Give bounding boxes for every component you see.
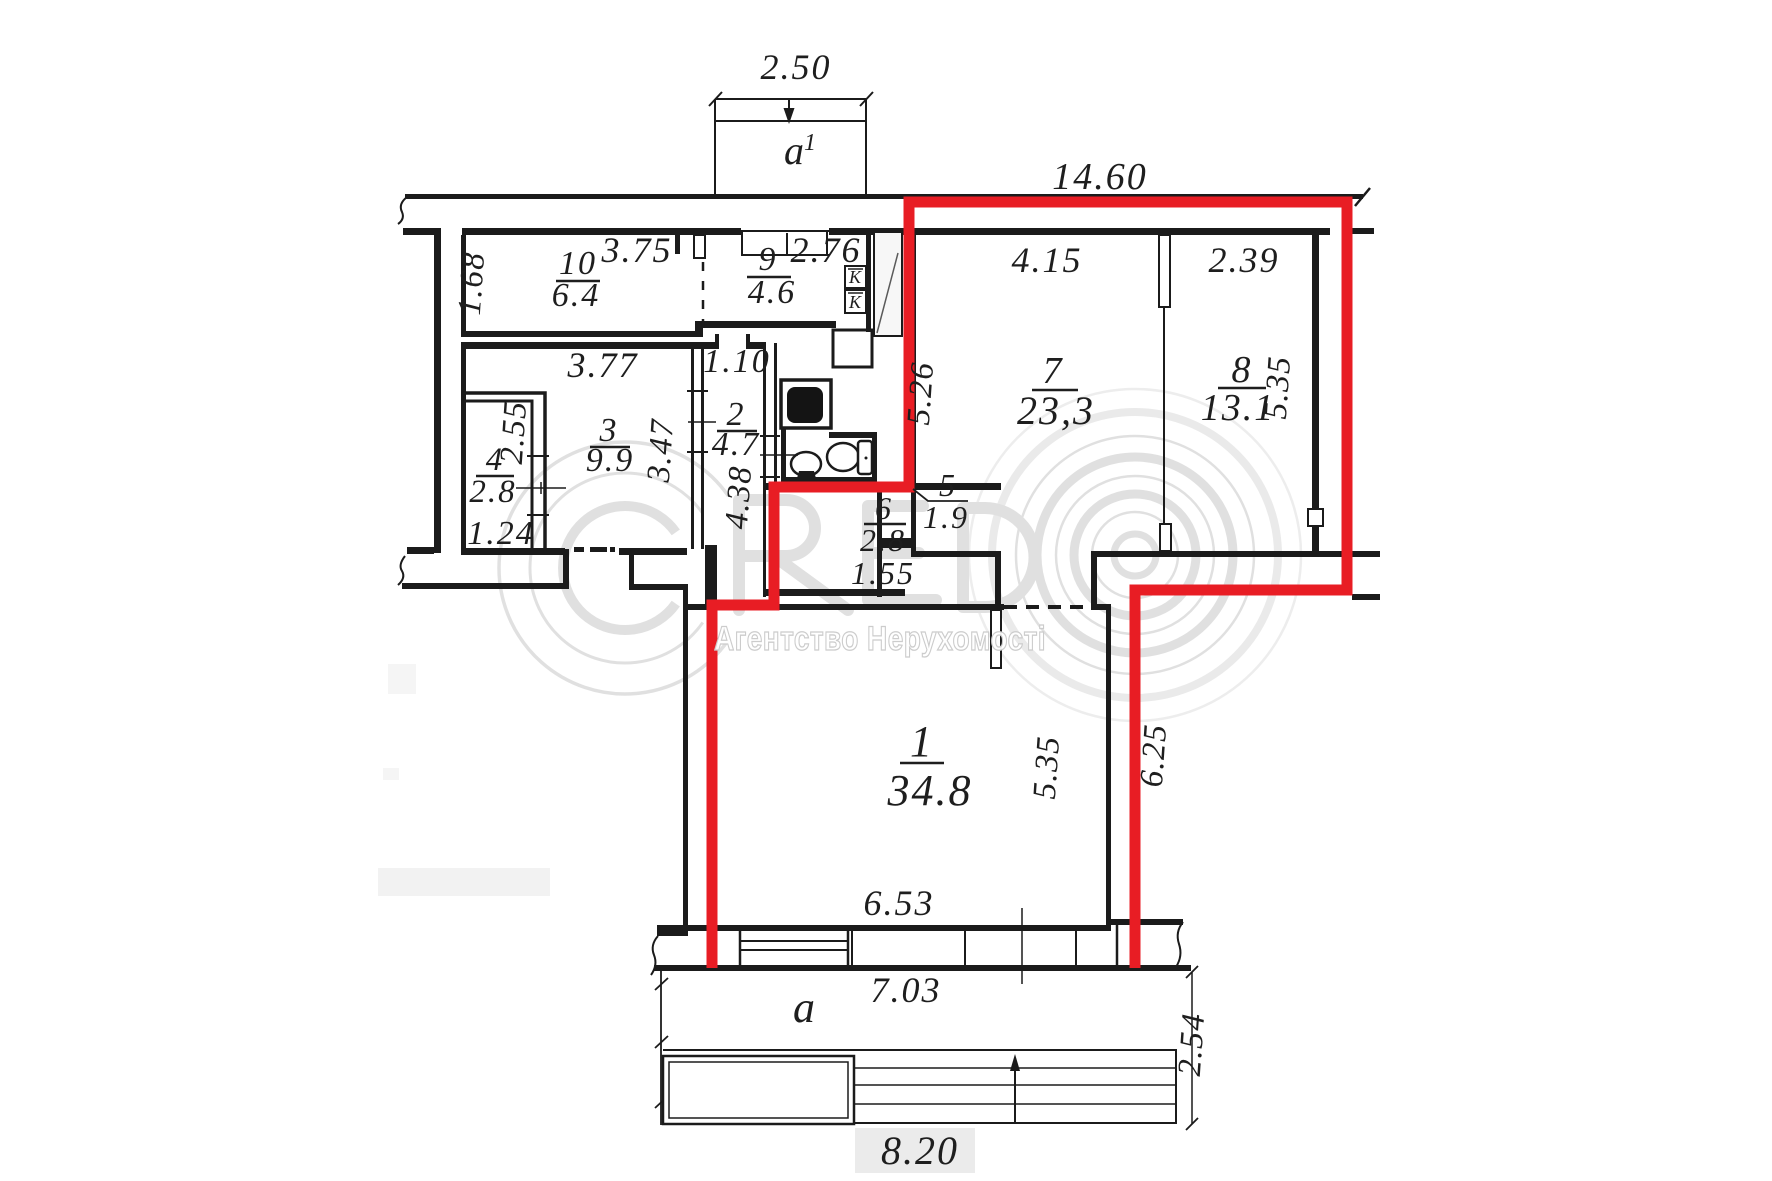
svg-text:9.9: 9.9 xyxy=(586,442,635,479)
svg-text:2.8: 2.8 xyxy=(469,474,516,510)
svg-text:6.53: 6.53 xyxy=(864,883,935,923)
svg-text:6.4: 6.4 xyxy=(552,277,601,314)
svg-text:1.24: 1.24 xyxy=(467,515,535,552)
svg-text:4.38: 4.38 xyxy=(719,464,759,530)
svg-text:1: 1 xyxy=(910,717,934,766)
svg-text:1.10: 1.10 xyxy=(703,343,771,380)
svg-text:7.03: 7.03 xyxy=(871,970,942,1010)
svg-text:4.15: 4.15 xyxy=(1012,240,1083,280)
svg-text:4.7: 4.7 xyxy=(712,426,761,463)
svg-text:9: 9 xyxy=(759,241,778,278)
svg-text:8.20: 8.20 xyxy=(881,1128,959,1173)
svg-text:3.77: 3.77 xyxy=(567,345,639,385)
svg-text:а: а xyxy=(793,983,815,1032)
svg-text:1.55: 1.55 xyxy=(851,555,915,591)
svg-text:2.76: 2.76 xyxy=(791,230,862,270)
svg-text:34.8: 34.8 xyxy=(887,766,973,815)
svg-text:2.50: 2.50 xyxy=(761,47,832,87)
svg-text:К: К xyxy=(848,267,862,287)
svg-text:8: 8 xyxy=(1232,349,1253,391)
svg-text:Агентство Нерухомості: Агентство Нерухомості xyxy=(714,620,1046,658)
svg-text:2.39: 2.39 xyxy=(1209,240,1280,280)
svg-text:4.6: 4.6 xyxy=(748,274,797,311)
svg-text:3.47: 3.47 xyxy=(641,417,681,484)
svg-text:4: 4 xyxy=(486,442,505,478)
svg-text:14.60: 14.60 xyxy=(1052,156,1148,198)
svg-text:6.25: 6.25 xyxy=(1134,722,1174,788)
svg-text:2.54: 2.54 xyxy=(1172,1011,1212,1077)
svg-text:7: 7 xyxy=(1043,350,1064,392)
svg-text:1.68: 1.68 xyxy=(452,250,492,316)
svg-text:1.9: 1.9 xyxy=(923,499,969,535)
svg-text:5: 5 xyxy=(939,467,957,503)
svg-text:5.35: 5.35 xyxy=(1027,734,1067,800)
svg-text:6: 6 xyxy=(875,490,893,526)
svg-text:5.35: 5.35 xyxy=(1258,354,1298,420)
svg-text:3.75: 3.75 xyxy=(601,230,673,270)
svg-text:5.26: 5.26 xyxy=(901,360,941,426)
svg-text:2.8: 2.8 xyxy=(860,522,906,558)
svg-text:К: К xyxy=(848,292,862,312)
svg-text:23,3: 23,3 xyxy=(1017,388,1095,433)
